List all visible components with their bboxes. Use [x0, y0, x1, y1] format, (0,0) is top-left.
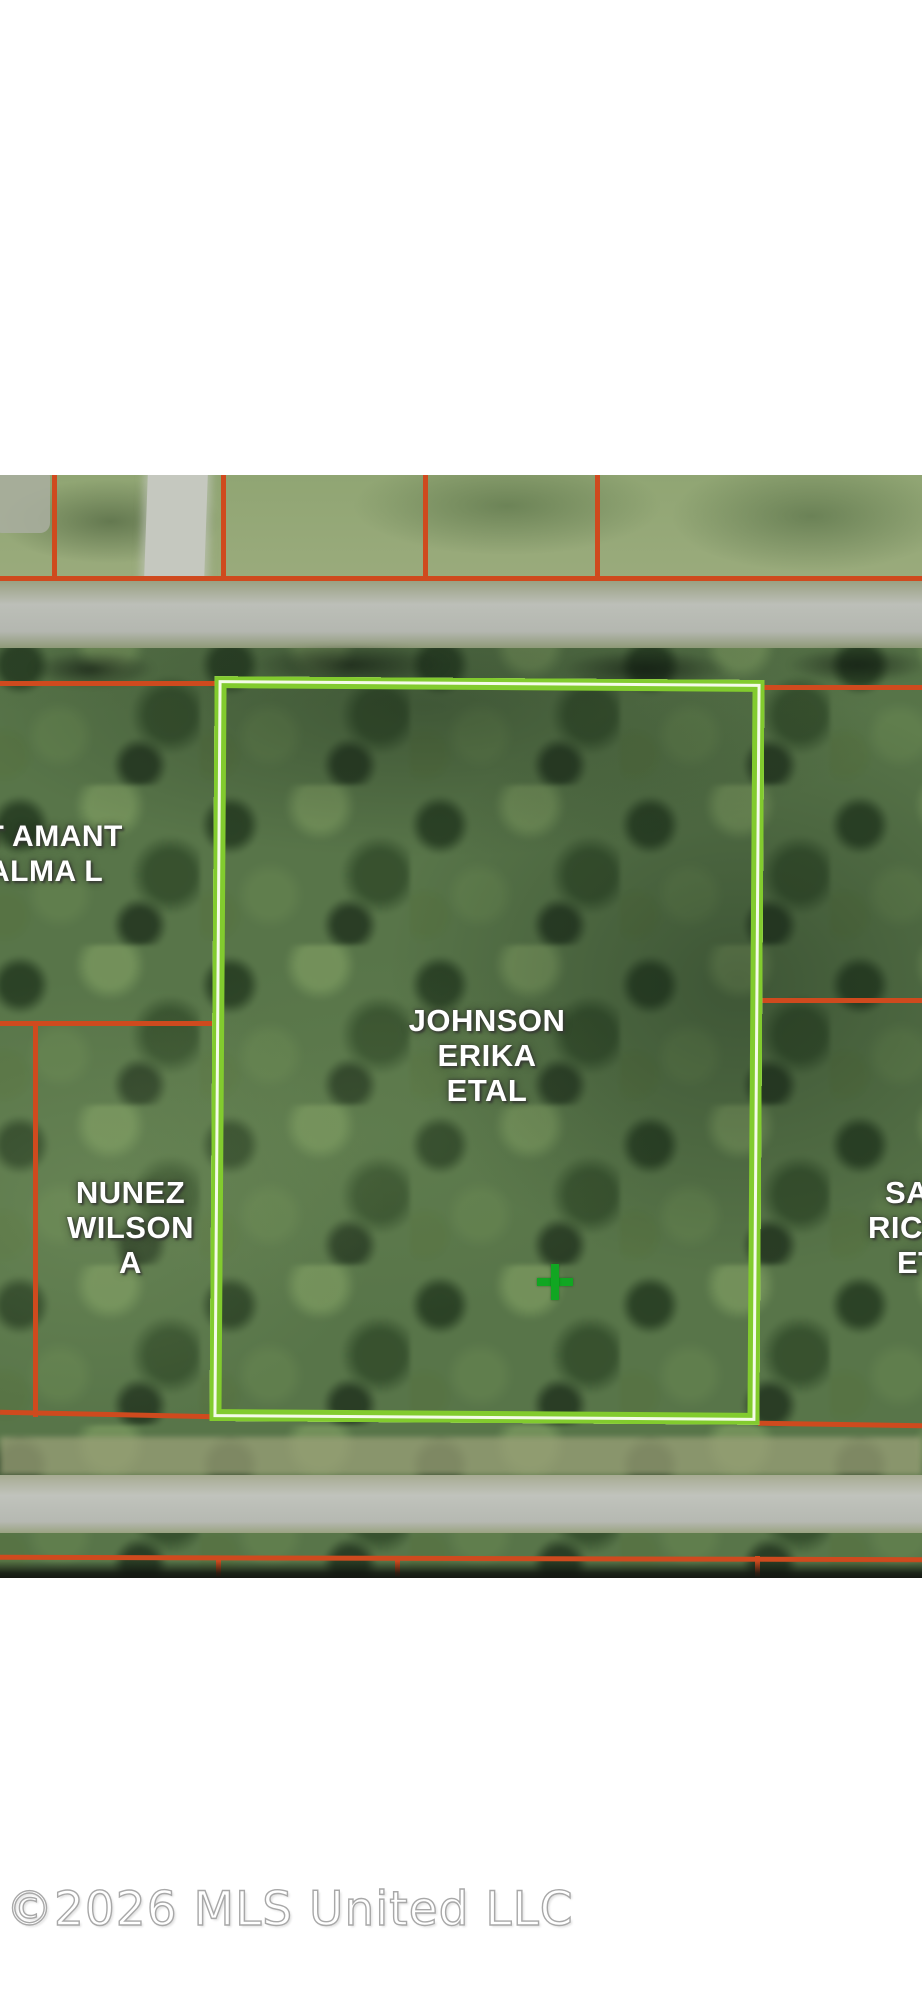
top-grass-strip	[0, 475, 922, 578]
photo-bottom-edge-shadow	[0, 1561, 922, 1578]
mls-watermark: ©2026 MLS United LLC	[6, 1882, 574, 1937]
parcel-label-nunez: NUNEZ WILSON A	[28, 1175, 233, 1280]
parcel-label-line: ETAL	[337, 1073, 637, 1108]
listing-photo-page: ST AMANT ALMA L JOHNSON ERIKA ETAL NUNEZ…	[0, 0, 922, 2000]
aerial-parcel-map: ST AMANT ALMA L JOHNSON ERIKA ETAL NUNEZ…	[0, 475, 922, 1578]
lower-road-shoulder	[0, 1437, 922, 1475]
parcel-line-left-upper	[0, 681, 220, 686]
parcel-label-line: A	[28, 1245, 233, 1280]
parcel-line-right-divider	[762, 998, 922, 1003]
upper-road	[0, 581, 922, 648]
top-left-pavement	[0, 475, 50, 533]
plus-vertical-bar	[551, 1264, 559, 1300]
parcel-label-right-truncated: SA RIC ET	[862, 1175, 922, 1280]
parcel-label-line: JOHNSON	[337, 1003, 637, 1038]
parcel-line-right-upper	[758, 685, 922, 690]
parcel-label-line: ST AMANT	[0, 819, 123, 854]
parcel-label-line: ERIKA	[337, 1038, 637, 1073]
parcel-label-line: RIC	[868, 1210, 922, 1245]
parcel-label-line: NUNEZ	[28, 1175, 233, 1210]
parcel-label-line: WILSON	[28, 1210, 233, 1245]
parcel-line-vertical-top-2	[221, 475, 226, 579]
lower-road	[0, 1475, 922, 1533]
parcel-line-above-upper-road	[0, 576, 922, 581]
parcel-line-vertical-top-4	[595, 475, 600, 579]
plus-marker-icon	[537, 1264, 573, 1300]
parcel-line-vertical-top-3	[423, 475, 428, 579]
driveway	[144, 475, 208, 582]
parcel-line-vertical-top-1	[52, 475, 57, 579]
parcel-label-line: ET	[897, 1245, 922, 1280]
parcel-label-johnson: JOHNSON ERIKA ETAL	[337, 1003, 637, 1108]
parcel-label-line: SA	[885, 1175, 922, 1210]
parcel-label-line: ALMA L	[0, 854, 103, 889]
